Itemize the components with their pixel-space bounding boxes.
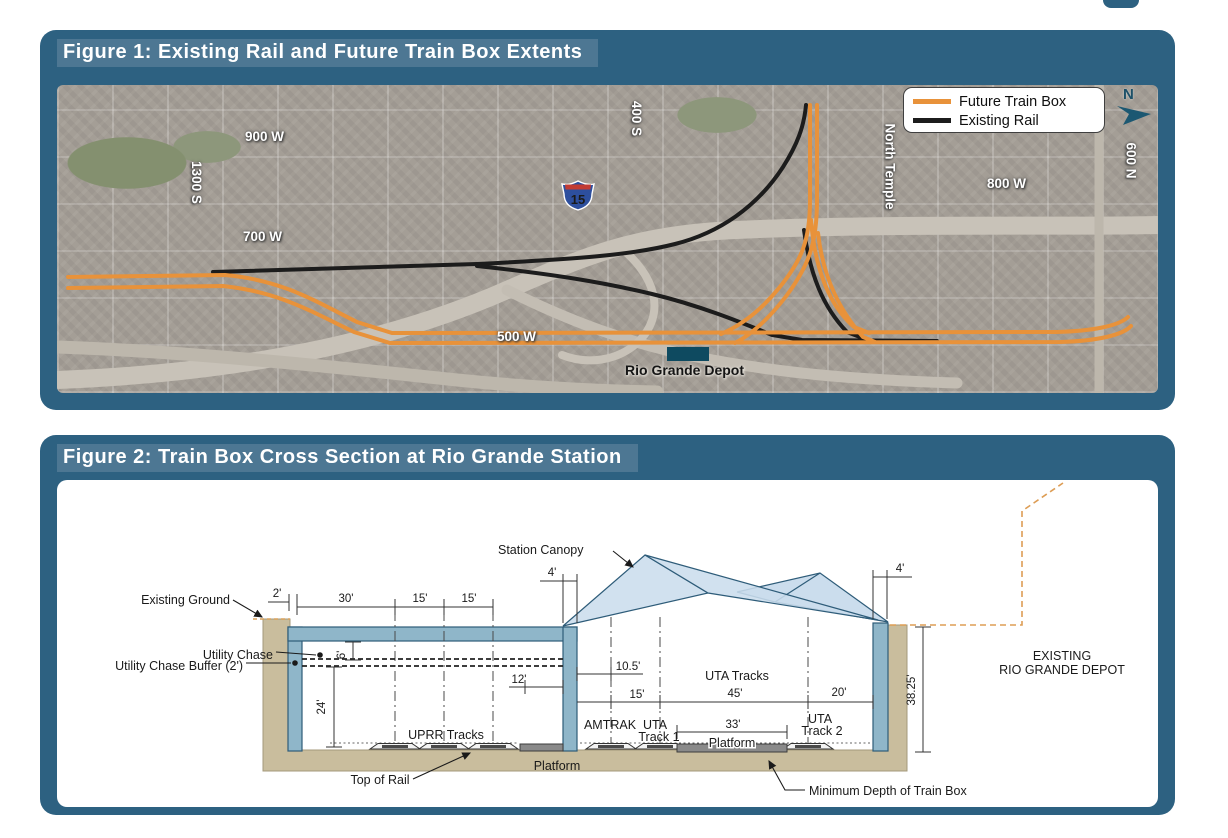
existing-depot-line2: RIO GRANDE DEPOT <box>999 663 1125 677</box>
dim-33ft: 33' <box>726 719 741 731</box>
map-legend: Future Train Box Existing Rail <box>903 87 1105 133</box>
dim-4ft-left: 4' <box>548 567 557 579</box>
dim-4ft-right: 4' <box>896 563 905 575</box>
uta-track1-line2: Track 1 <box>638 730 679 744</box>
legend-existing-label: Existing Rail <box>959 113 1039 129</box>
station-canopy-label: Station Canopy <box>498 543 584 557</box>
dim-15ft-c: 15' <box>630 689 645 701</box>
figure2-title-band: Figure 2: Train Box Cross Section at Rio… <box>57 444 638 472</box>
street-label-800w: 800 W <box>987 176 1026 191</box>
depot-label: Rio Grande Depot <box>625 362 744 378</box>
future-train-box-swatch <box>913 99 951 104</box>
figure2-panel: Figure 2: Train Box Cross Section at Rio… <box>40 435 1175 815</box>
aerial-map: 900 W 1300 S 700 W 400 S North Temple 80… <box>57 85 1158 393</box>
dim-38-25ft: 38.25' <box>906 675 918 706</box>
existing-rail-swatch <box>913 118 951 123</box>
dim-12ft: 12' <box>512 674 527 686</box>
existing-depot-line1: EXISTING <box>1033 649 1091 663</box>
uta-track2-line2: Track 2 <box>801 724 842 738</box>
north-arrow-icon <box>1115 101 1155 131</box>
page-top-decoration <box>1103 0 1139 8</box>
depot-outline-dashed <box>890 483 1063 625</box>
dim-2ft: 2' <box>273 588 282 600</box>
street-label-700w: 700 W <box>243 229 282 244</box>
document-page: { "figure1": { "title": "Figure 1: Exist… <box>0 0 1228 838</box>
dim-30ft: 30' <box>339 593 354 605</box>
figure2-title: Figure 2: Train Box Cross Section at Rio… <box>63 446 622 468</box>
street-label-400s: 400 S <box>629 101 644 136</box>
top-of-rail-label: Top of Rail <box>350 773 409 787</box>
amtrak-label: AMTRAK <box>584 718 637 732</box>
dim-45ft: 45' <box>728 688 743 700</box>
existing-ground-label: Existing Ground <box>141 593 230 607</box>
cross-section-svg: Station Canopy Existing Ground Utility C… <box>57 480 1158 807</box>
uta-tracks-label: UTA Tracks <box>705 669 769 683</box>
utility-chase-buffer-label: Utility Chase Buffer (2') <box>115 659 243 673</box>
cross-section-canvas: Station Canopy Existing Ground Utility C… <box>57 480 1158 807</box>
interstate-15-shield: 15 <box>561 180 595 211</box>
uprr-side-platform <box>520 744 563 751</box>
legend-future-label: Future Train Box <box>959 94 1066 110</box>
street-label-500w: 500 W <box>497 329 536 344</box>
street-label-900w: 900 W <box>245 129 284 144</box>
street-label-north-temple: North Temple <box>883 123 898 209</box>
dim-24ft: 24' <box>316 700 328 715</box>
dim-15ft-b: 15' <box>462 593 477 605</box>
dim-15ft-a: 15' <box>413 593 428 605</box>
platform-left-label: Platform <box>534 759 581 773</box>
figure1-title-row: Figure 1: Existing Rail and Future Train… <box>57 39 598 67</box>
utility-chase-dot <box>317 652 323 658</box>
shield-number: 15 <box>571 192 585 207</box>
dim-6ft: 6' <box>336 651 348 660</box>
figure1-panel: Figure 1: Existing Rail and Future Train… <box>40 30 1175 410</box>
min-depth-label: Minimum Depth of Train Box <box>809 784 967 798</box>
legend-row-future: Future Train Box <box>913 92 1104 111</box>
utility-chase-buffer-dot <box>292 660 298 666</box>
street-label-600n: 600 N <box>1124 142 1139 178</box>
north-arrow: N <box>1115 85 1155 133</box>
uprr-tracks-label: UPRR Tracks <box>408 728 484 742</box>
figure2-title-row: Figure 2: Train Box Cross Section at Rio… <box>57 444 638 472</box>
dim-20ft: 20' <box>832 687 847 699</box>
street-label-1300s: 1300 S <box>189 161 204 204</box>
figure1-title: Figure 1: Existing Rail and Future Train… <box>63 41 582 63</box>
rio-grande-depot-building <box>667 347 709 361</box>
figure1-title-band: Figure 1: Existing Rail and Future Train… <box>57 39 598 67</box>
station-canopy-shape <box>563 555 888 626</box>
dim-10-5ft: 10.5' <box>616 661 641 673</box>
platform-center-label: Platform <box>709 736 756 750</box>
legend-row-existing: Existing Rail <box>913 111 1104 130</box>
